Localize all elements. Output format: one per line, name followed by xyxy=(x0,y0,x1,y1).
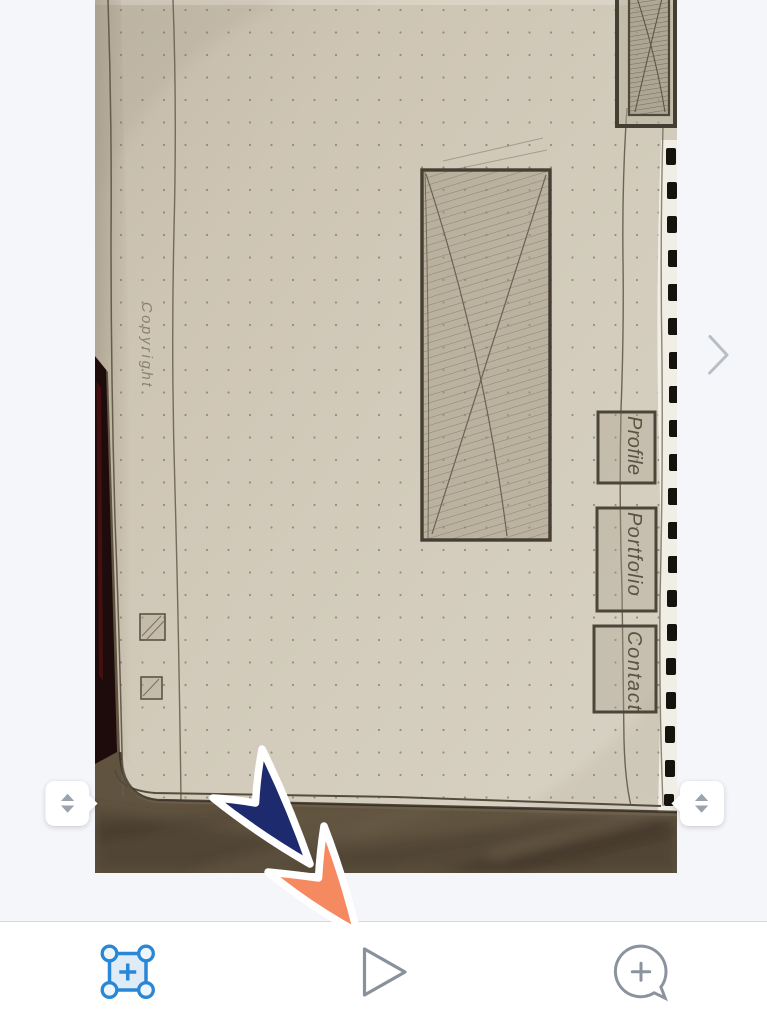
svg-text:Contact: Contact xyxy=(623,631,645,712)
svg-text:Portfolio: Portfolio xyxy=(623,512,645,597)
svg-text:Profile: Profile xyxy=(623,416,645,476)
svg-text:Copyright: Copyright xyxy=(138,302,154,389)
